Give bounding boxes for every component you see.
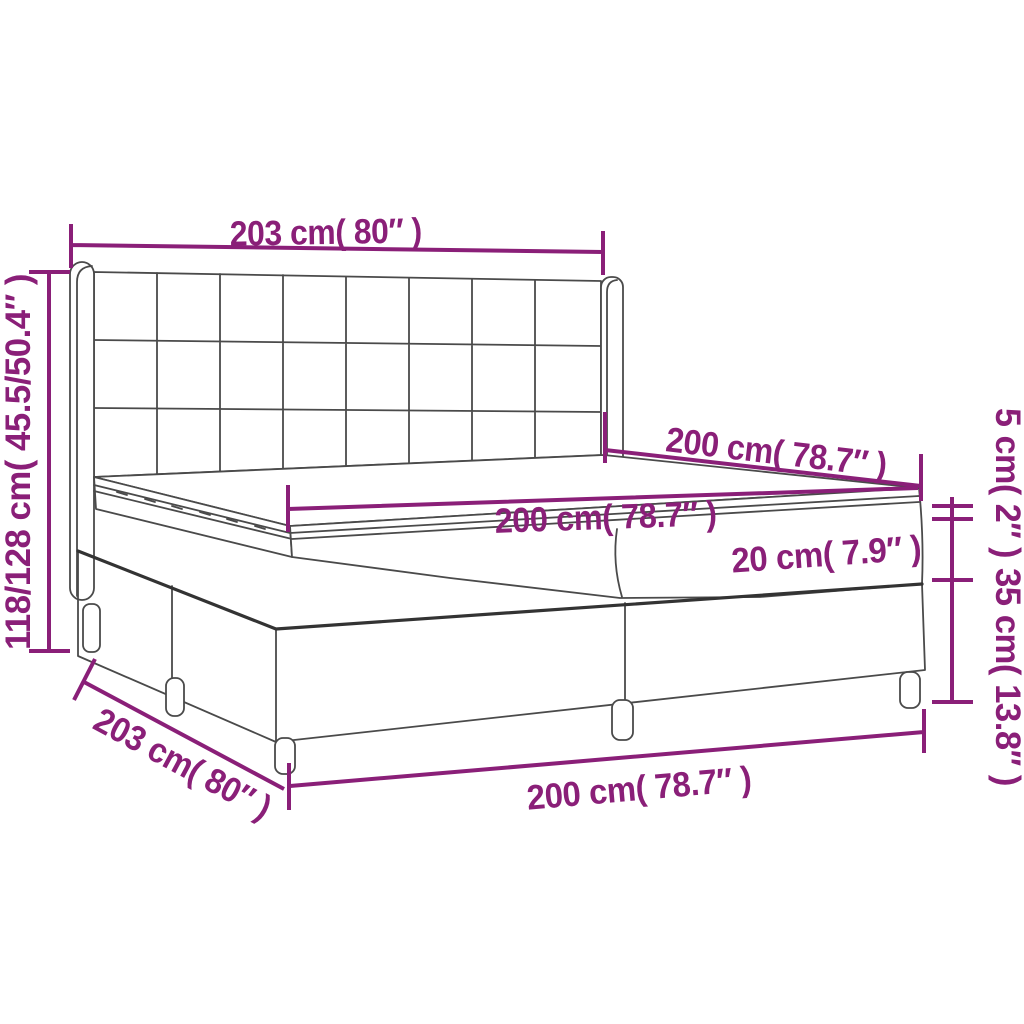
label-topper-height: 5 cm( 2″ ) bbox=[988, 408, 1024, 558]
label-base-side-length: 203 cm( 80″ ) bbox=[87, 700, 277, 827]
leg bbox=[612, 700, 633, 740]
headboard-face bbox=[94, 272, 601, 477]
label-total-height: 118/128 cm( 45.5/50.4″ ) bbox=[0, 274, 38, 650]
label-mattress-width: 200 cm( 78.7″ ) bbox=[494, 494, 717, 541]
leg bbox=[900, 672, 920, 708]
dim-height-bracket bbox=[932, 497, 973, 702]
bed-dimension-diagram: 203 cm( 80″ ) 118/128 cm( 45.5/50.4″ ) 2… bbox=[0, 0, 1024, 1024]
leg bbox=[166, 678, 184, 716]
leg bbox=[275, 738, 295, 774]
headboard-left-wing bbox=[70, 262, 94, 600]
label-base-front-width: 200 cm( 78.7″ ) bbox=[525, 759, 753, 817]
label-headboard-width: 203 cm( 80″ ) bbox=[229, 211, 422, 253]
label-box-height: 35 cm( 13.8″ ) bbox=[988, 568, 1024, 786]
headboard-grid bbox=[94, 273, 601, 474]
dimension-diagram-canvas: 203 cm( 80″ ) 118/128 cm( 45.5/50.4″ ) 2… bbox=[0, 0, 1024, 1024]
leg bbox=[83, 604, 100, 652]
